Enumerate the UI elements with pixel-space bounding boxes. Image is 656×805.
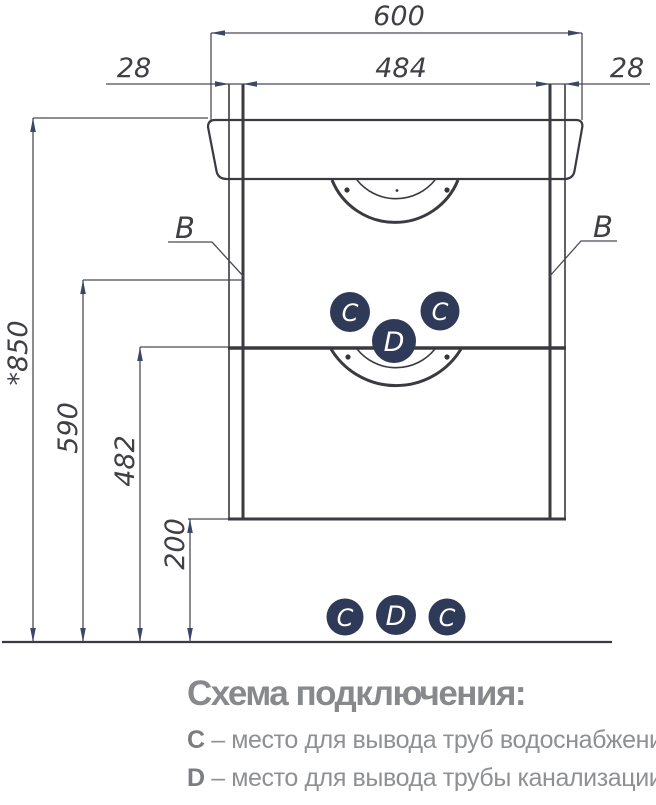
water-supply-marker-letter: C	[342, 299, 359, 327]
arrowhead	[211, 30, 225, 36]
arrowhead	[30, 628, 36, 642]
sink-screw-dot-left	[344, 187, 349, 192]
legend-item-drain: D – место для вывода трубы канализации	[187, 764, 656, 793]
arrowhead	[243, 81, 257, 87]
legend-title: Схема подключения:	[187, 674, 656, 714]
dim-28-right-label: 28	[610, 53, 644, 84]
cabinet-outline	[2, 84, 612, 642]
arrowhead	[80, 280, 86, 294]
arrowhead	[137, 628, 143, 642]
dimension-labels: 600 484 28 28 *850 590 482 200 B B	[3, 1, 644, 570]
legend-key-d: D	[187, 764, 205, 792]
legend-key-c: C	[187, 726, 205, 754]
section-b-left-label: B	[175, 211, 195, 245]
legend-desc-d: – место для вывода трубы канализации	[211, 764, 656, 792]
dim-28-left-label: 28	[117, 53, 151, 84]
legend-item-water-supply: C – место для вывода труб водоснабжения	[187, 726, 656, 755]
dim-484-label: 484	[375, 53, 427, 84]
sink-center-dot	[396, 189, 399, 192]
water-supply-marker-letter: C	[432, 298, 449, 326]
sink-drain-arc-outer	[332, 180, 458, 222]
drain-marker-letter: D	[384, 327, 405, 358]
arrowhead	[80, 628, 86, 642]
connection-markers: C C D C D C	[327, 292, 466, 636]
water-supply-marker-letter: C	[439, 604, 456, 632]
dim-590-label: 590	[53, 402, 84, 454]
arrowhead	[187, 628, 193, 642]
washbasin-outline	[208, 120, 582, 179]
arrowhead	[536, 81, 550, 87]
arrowhead	[137, 347, 143, 361]
sink-drain-arc-inner	[357, 180, 435, 199]
connection-legend: Схема подключения: C – место для вывода …	[187, 674, 656, 714]
arrowhead	[568, 30, 582, 36]
dim-850-label: *850	[3, 320, 34, 385]
legend-desc-c: – место для вывода труб водоснабжения	[211, 726, 656, 754]
b-right-leader	[549, 241, 617, 277]
dim-482-label: 482	[110, 435, 141, 487]
shelf-screw-dot-left	[345, 354, 350, 359]
water-supply-marker-letter: C	[337, 604, 354, 632]
b-left-leader	[168, 242, 244, 277]
arrowhead	[215, 81, 229, 87]
arrowhead	[565, 81, 579, 87]
dimension-lines	[30, 30, 650, 642]
sink-screw-dot-right	[444, 187, 449, 192]
drain-marker-letter: D	[386, 601, 407, 632]
dim-600-label: 600	[373, 1, 425, 32]
arrowhead	[30, 118, 36, 132]
section-b-right-label: B	[593, 210, 613, 244]
shelf-screw-dot-right	[444, 354, 449, 359]
dim-200-label: 200	[160, 518, 191, 570]
